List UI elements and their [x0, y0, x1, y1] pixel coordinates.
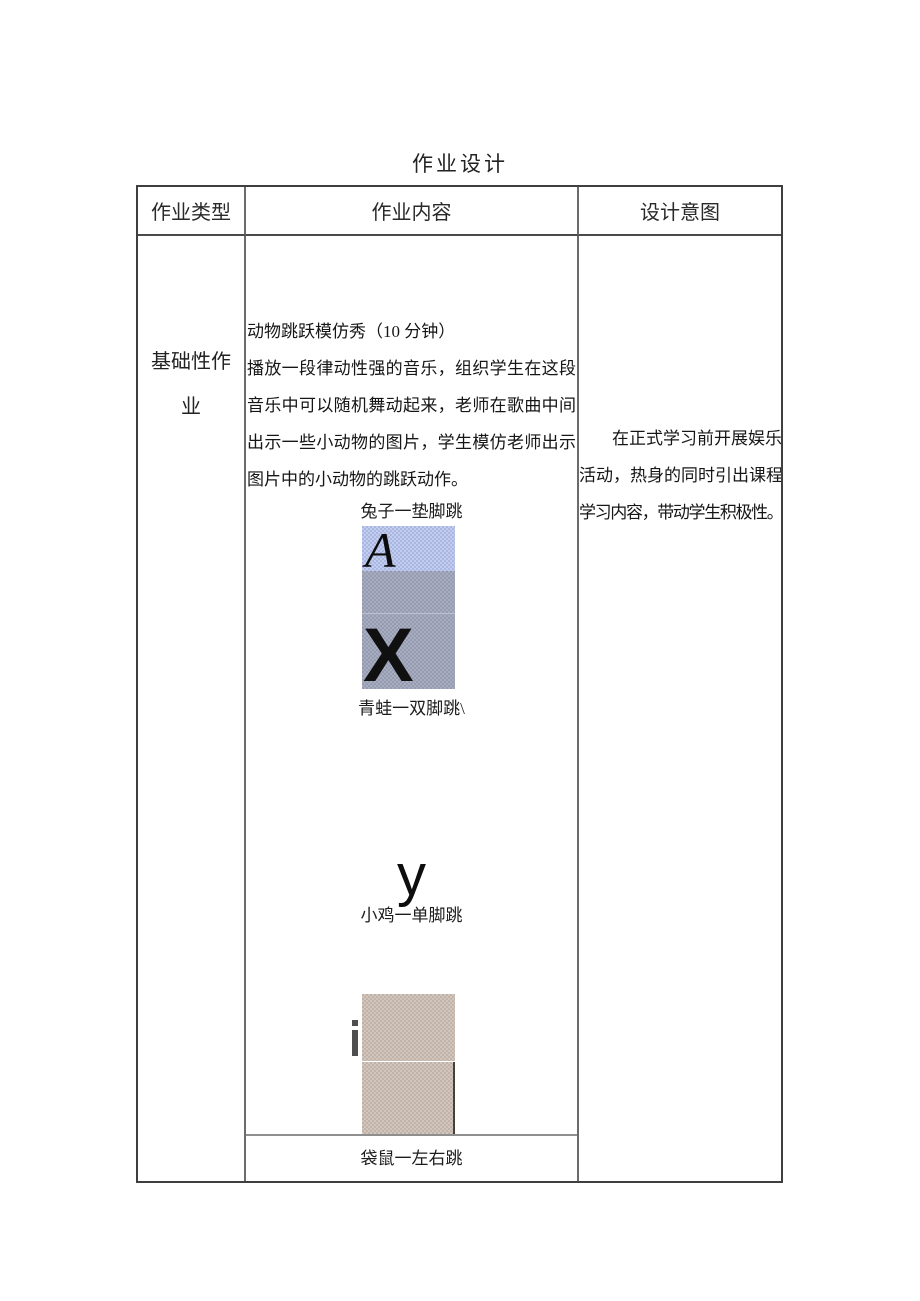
content-body-line: 播放一段律动性强的音乐，组织学生在这段 — [246, 350, 577, 387]
kangaroo-image-placeholder-bottom — [362, 1062, 455, 1134]
content-heading: 动物跳跃模仿秀（10 分钟） — [246, 313, 577, 350]
kangaroo-image-placeholder-top — [362, 994, 455, 1061]
intent-line: 活动，热身的同时引出课程 — [579, 457, 781, 494]
content-body-line: 图片中的小动物的跳跃动作。 — [246, 461, 577, 498]
page-title: 作业设计 — [0, 148, 920, 178]
rabbit-image-placeholder: A — [362, 526, 455, 571]
header-homework-type: 作业类型 — [138, 187, 246, 236]
header-design-intent: 设计意图 — [579, 187, 781, 236]
homework-design-table: 作业类型 作业内容 设计意图 基础性作业 动物跳跃模仿秀（10 分钟） 播放一段… — [136, 185, 783, 1183]
frog-caption: 青蛙一双脚跳\ — [246, 695, 577, 723]
placeholder-letter-x: X — [363, 618, 414, 694]
kangaroo-caption: 袋鼠一左右跳 — [246, 1136, 577, 1181]
intent-line: 在正式学习前开展娱乐 — [579, 420, 781, 457]
placeholder-letter-a: A — [365, 525, 396, 575]
letter-i-dot — [352, 1020, 358, 1026]
chick-image-placeholder: y — [246, 840, 577, 902]
header-design-intent-label: 设计意图 — [640, 196, 720, 225]
header-homework-content: 作业内容 — [246, 187, 579, 236]
cell-homework-content: 动物跳跃模仿秀（10 分钟） 播放一段律动性强的音乐，组织学生在这段 音乐中可以… — [246, 236, 579, 1181]
homework-type-label: 基础性作业 — [147, 340, 235, 430]
chick-caption: 小鸡一单脚跳 — [246, 902, 577, 930]
cell-design-intent: 在正式学习前开展娱乐 活动，热身的同时引出课程 学习内容，带动学生积极性。 — [579, 236, 781, 1181]
frog-image-placeholder: X — [362, 571, 455, 689]
content-body-line: 出示一些小动物的图片，学生模仿老师出示 — [246, 424, 577, 461]
placeholder-letter-i-icon — [352, 1020, 358, 1056]
cell-homework-type: 基础性作业 — [138, 236, 246, 1181]
rabbit-caption: 兔子一垫脚跳 — [246, 498, 577, 526]
letter-i-bar — [352, 1030, 358, 1056]
placeholder-letter-y: y — [397, 847, 426, 905]
intent-line: 学习内容，带动学生积极性。 — [579, 494, 781, 531]
content-body-line: 音乐中可以随机舞动起来，老师在歌曲中间 — [246, 387, 577, 424]
document-page: 作业设计 作业类型 作业内容 设计意图 基础性作业 动物跳跃模仿秀（10 分钟）… — [0, 0, 920, 1301]
